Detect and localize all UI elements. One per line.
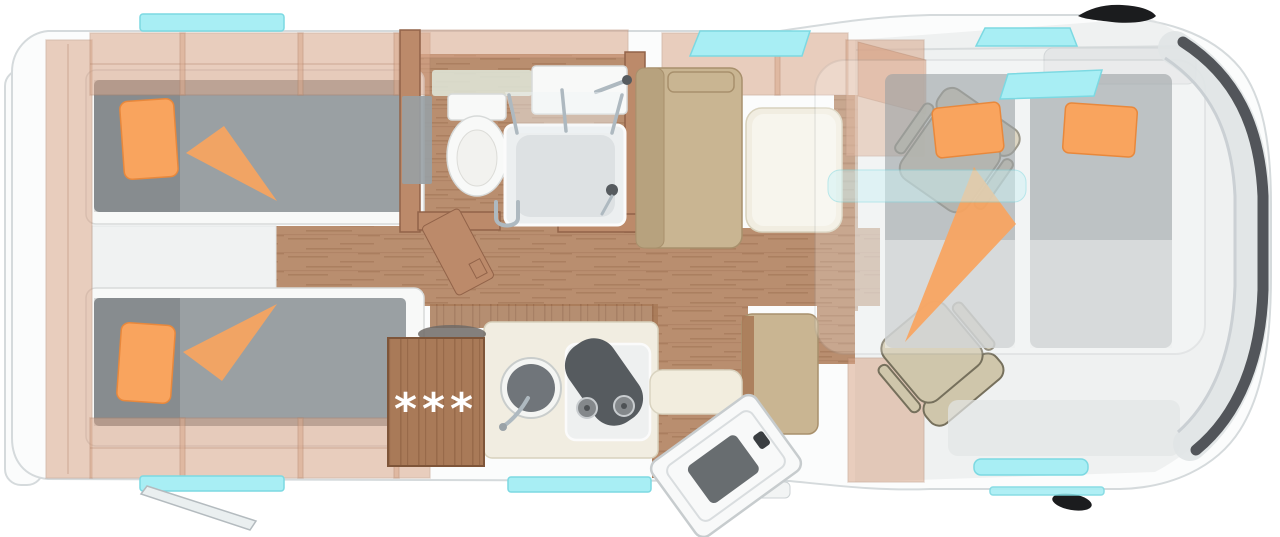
dropbed-pillow-left (932, 102, 1005, 159)
between-beds-step (92, 226, 276, 290)
roof-skylight-cab (976, 28, 1077, 46)
kitchen: *** (388, 304, 658, 466)
sink-bowl (507, 364, 555, 412)
open-window-pane (141, 486, 256, 530)
locker-divider (180, 418, 185, 478)
locker-divider (298, 418, 303, 478)
cab-window-top (1000, 70, 1102, 99)
pillow-top (119, 98, 178, 180)
refrigerator: *** (388, 325, 486, 466)
bench-backrest (636, 68, 664, 248)
shower-tray-inner (516, 135, 615, 217)
hob (555, 329, 652, 440)
cab-door-window (974, 459, 1088, 475)
window-top-left (140, 14, 284, 31)
window-bottom-left (140, 476, 284, 491)
shower (505, 90, 625, 225)
dropbed-sheet-right (1030, 240, 1172, 348)
locker-divider (394, 33, 399, 95)
cab-door-panel (948, 400, 1180, 456)
toilet-seat (457, 130, 497, 186)
rear-wardrobe (46, 40, 92, 478)
dropbed-pillow-right (1062, 103, 1137, 158)
pillow-bottom (116, 322, 175, 404)
bathroom-top-cabinet (420, 30, 628, 58)
burner-center (621, 403, 627, 409)
freezer-stars: *** (394, 384, 478, 435)
shower-head (606, 184, 618, 196)
roof-skylight-mid (690, 31, 810, 56)
bench-headrest (668, 72, 734, 92)
bedroom-corridor-floor (276, 226, 432, 292)
burner-center (584, 405, 590, 411)
locker-divider (298, 33, 303, 95)
sink-faucet-base (499, 423, 507, 431)
drop-down-bed (815, 60, 1205, 354)
motorhome-floorplan: *** (0, 0, 1280, 537)
toilet (447, 94, 507, 196)
floorplan-canvas: *** (0, 0, 1280, 537)
dinette-bench-left (636, 68, 742, 248)
basin-faucet-head (622, 75, 632, 85)
cab-roof-skylight (828, 170, 1026, 202)
window-bottom-mid (508, 477, 651, 492)
bathroom-window (402, 96, 432, 184)
locker-divider (180, 33, 185, 95)
cab-door-window-strip (990, 487, 1104, 495)
